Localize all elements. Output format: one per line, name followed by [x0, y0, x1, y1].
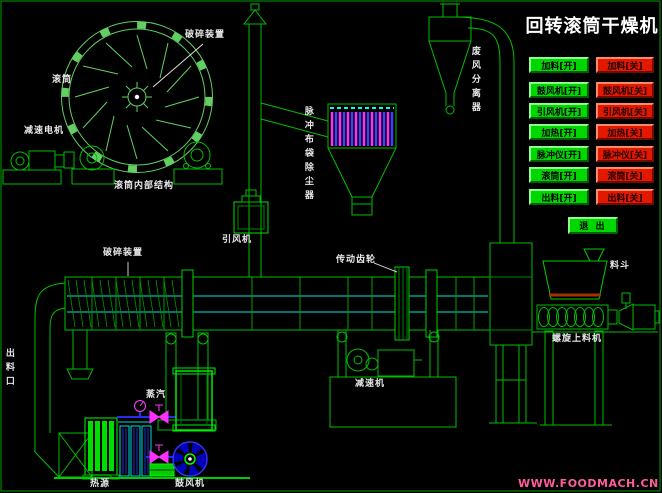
label-reduction-motor: 减速电机: [24, 127, 64, 137]
label-blower: 鼓风机: [175, 480, 205, 490]
label-crusher-main: 破碎装置: [103, 249, 143, 259]
label-dust-collector: 脉冲布袋除尘器: [302, 106, 312, 204]
discharge-on-button[interactable]: 出料[开]: [529, 189, 589, 205]
label-discharge-outlet: 出料口: [3, 348, 13, 390]
heating-on-button[interactable]: 加热[开]: [529, 124, 589, 140]
label-drum-section: 滚筒: [52, 76, 72, 86]
induced-fan-off-button[interactable]: 引风机[关]: [596, 103, 654, 119]
drum-on-button[interactable]: 滚筒[开]: [529, 167, 589, 183]
label-screw-feeder: 螺旋上料机: [552, 335, 602, 345]
rotary-drum: [65, 262, 490, 340]
drum-off-button[interactable]: 滚筒[关]: [596, 167, 654, 183]
bag-dust-collector: [328, 104, 396, 215]
exhaust-stack: [244, 4, 328, 277]
drum-drive-station: [158, 330, 456, 430]
label-heat-source: 热源: [90, 480, 110, 490]
blower-on-button[interactable]: 鼓风机[开]: [529, 82, 589, 98]
induced-fan-unit: [234, 190, 268, 233]
label-transmission-gear: 传动齿轮: [336, 256, 376, 266]
page-title: 回转滚筒干燥机: [524, 12, 660, 40]
pulse-off-button[interactable]: 脉冲仪[关]: [596, 146, 654, 162]
feed-off-button[interactable]: 加料[关]: [596, 57, 654, 73]
label-crusher-top: 破碎装置: [185, 31, 225, 41]
heating-off-button[interactable]: 加热[关]: [596, 124, 654, 140]
label-hopper: 料斗: [610, 262, 630, 272]
heat-source-unit: [54, 368, 250, 479]
drum-end-view: [62, 22, 213, 173]
discharge-off-button[interactable]: 出料[关]: [596, 189, 654, 205]
label-waste-air-separator: 废风分离器: [469, 46, 479, 116]
cyclone-separator: [429, 4, 514, 243]
label-steam: 蒸汽: [146, 391, 166, 401]
watermark: WWW.FOODMACH.CN: [518, 477, 659, 490]
hmi-screen: 破碎装置 滚筒 减速电机 滚筒内部结构 脉冲布袋除尘器 引风机 废风分离器 破碎…: [0, 0, 662, 493]
exit-button[interactable]: 退 出: [568, 217, 618, 234]
label-reducer: 减速机: [355, 380, 385, 390]
feed-on-button[interactable]: 加料[开]: [529, 57, 589, 73]
induced-fan-on-button[interactable]: 引风机[开]: [529, 103, 589, 119]
leader-line-gear: [374, 263, 397, 272]
drum-support-and-motor: [3, 142, 222, 184]
drum-axis-dot: [135, 95, 139, 99]
blower-off-button[interactable]: 鼓风机[关]: [596, 82, 654, 98]
label-drum-internal: 滚筒内部结构: [114, 182, 174, 192]
label-induced-fan: 引风机: [222, 236, 252, 246]
discharge-hood: [489, 243, 658, 423]
process-diagram: [0, 0, 662, 493]
pulse-on-button[interactable]: 脉冲仪[开]: [529, 146, 589, 162]
